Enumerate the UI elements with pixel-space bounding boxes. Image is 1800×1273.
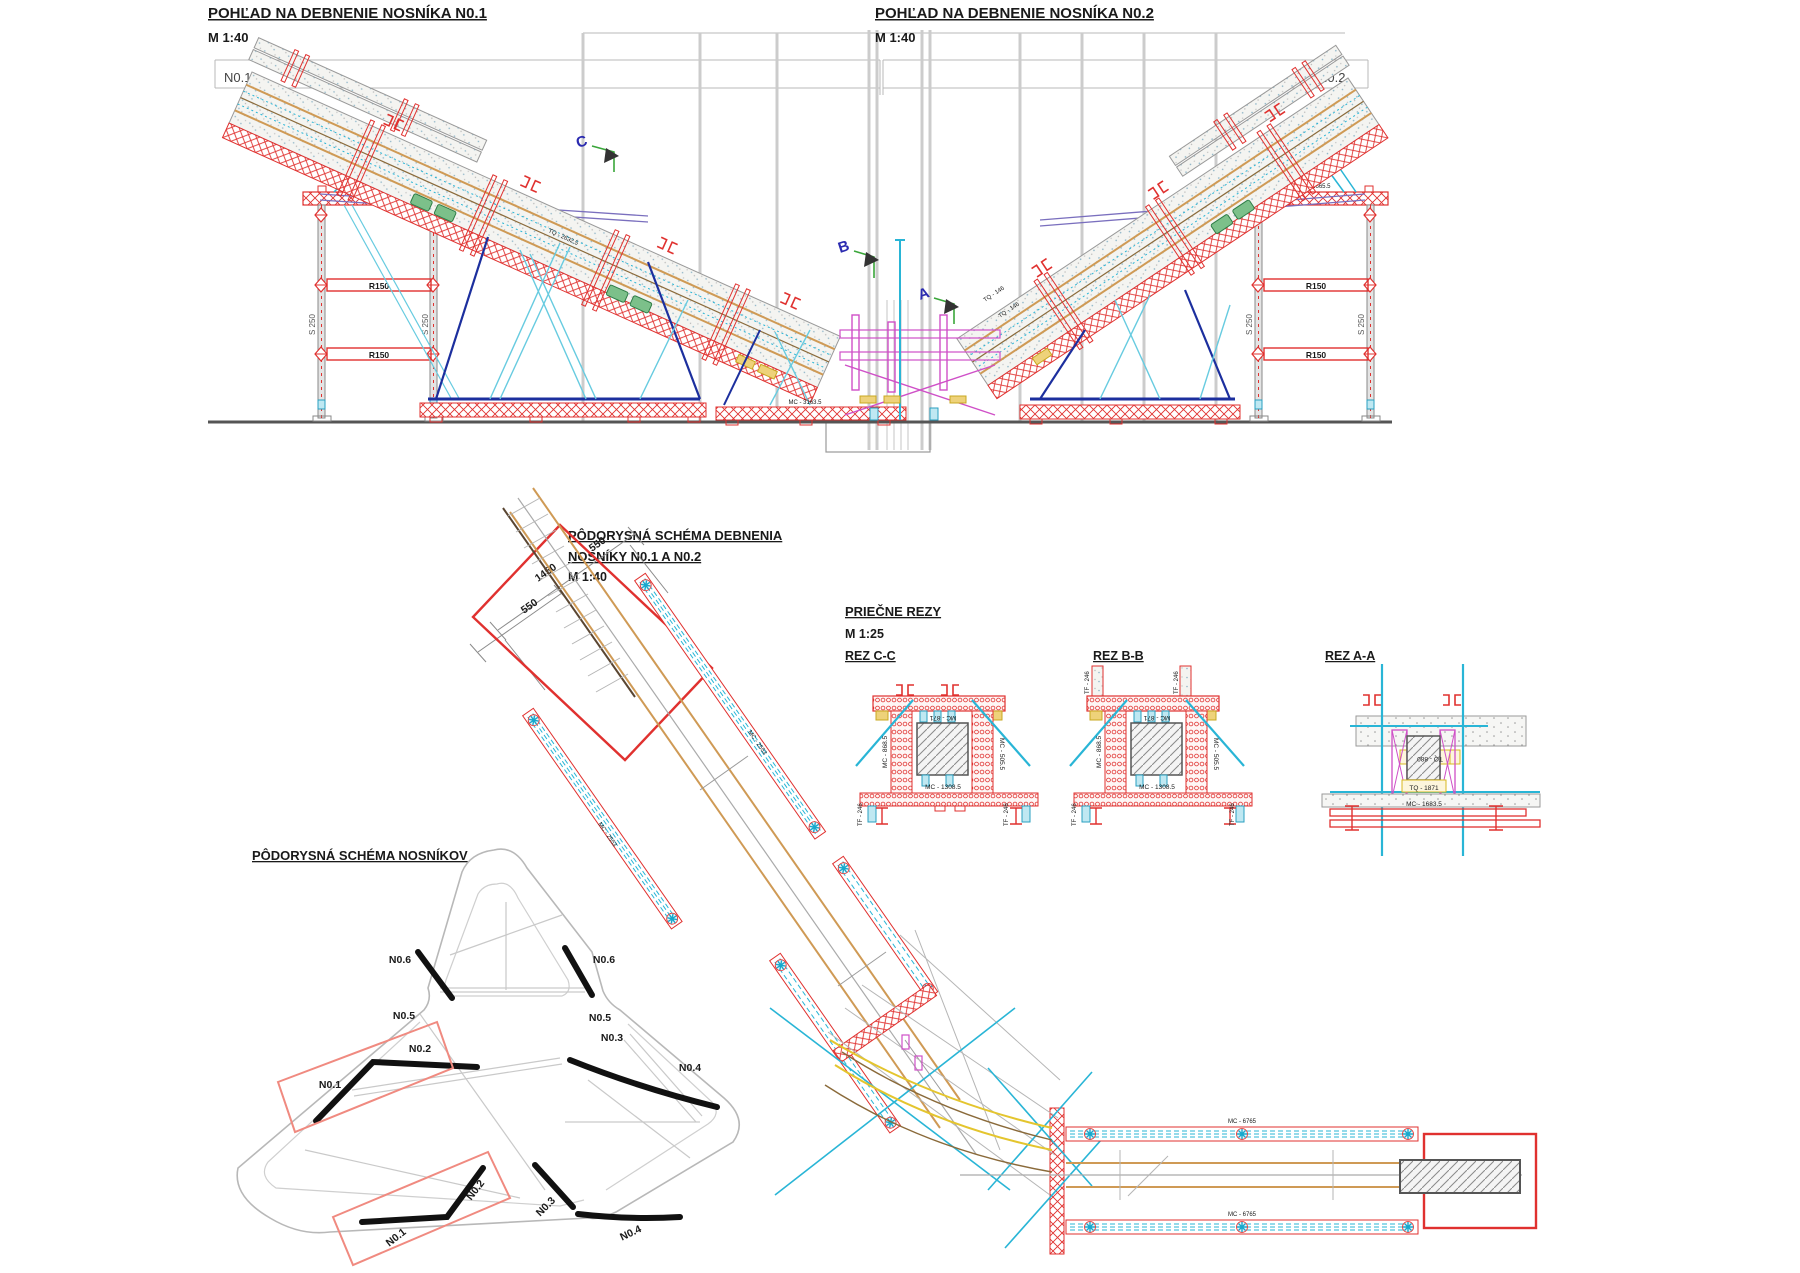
section-marker-c: C: [574, 132, 619, 172]
drawing-sheet: POHĽAD NA DEBNENIE NOSNÍKA N0.1 M 1:40 P…: [0, 0, 1800, 1273]
beam-label-n01: N0.1: [319, 1079, 341, 1091]
beam-label-n06: N0.6: [389, 954, 411, 966]
plan-junction: [770, 930, 1110, 1254]
node-part-label: TQ - 146: [983, 285, 1007, 303]
beam-label-n06: N0.6: [593, 954, 615, 966]
plan-beams-title: PÔDORYSNÁ SCHÉMA NOSNÍKOV: [252, 848, 468, 863]
rez-cc-title: REZ C-C: [845, 649, 896, 663]
mc868-label: MC - 868.5: [882, 735, 889, 768]
beam-label-n04: N0.4: [679, 1062, 701, 1074]
svg-text:B: B: [836, 237, 852, 257]
mc871-label: MC - 871: [1143, 714, 1170, 721]
bulkhead: [1050, 1108, 1064, 1254]
sections-scale: M 1:25: [845, 627, 884, 641]
chord-part-label: MC - 6765: [1228, 1212, 1257, 1218]
mc1308-label: MC - 1308.5: [925, 784, 961, 791]
s250-label: S 250: [308, 314, 317, 335]
beam-label-n04-rot: N0.4: [618, 1223, 643, 1243]
beam-label-n05: N0.5: [589, 1012, 611, 1024]
mc868-label: MC - 868.5: [1096, 735, 1103, 768]
r150-label: R150: [1306, 281, 1327, 291]
tf246-label: TF - 246: [858, 803, 864, 826]
grid-frame: [215, 33, 1368, 95]
mc1308-label: MC - 1308.5: [1139, 784, 1175, 791]
mc505-label: MC - 505.5: [998, 738, 1005, 771]
elev2-title: POHĽAD NA DEBNENIE NOSNÍKA N0.2: [875, 5, 1154, 22]
tie-rods: [320, 128, 1365, 400]
tq880-label: TQ - 880: [1417, 755, 1443, 762]
svg-text:C: C: [574, 132, 590, 152]
tf246-label: TF - 246: [1174, 671, 1180, 694]
plan-diagonal-strip: [503, 488, 976, 1154]
tf246-label: TF - 246: [1004, 803, 1010, 826]
tf246-label: TF - 246: [1085, 671, 1091, 694]
sections-title: PRIEČNE REZY: [845, 604, 941, 619]
cad-canvas: POHĽAD NA DEBNENIE NOSNÍKA N0.1 M 1:40 P…: [0, 0, 1800, 1273]
tq1871-label: TQ - 1871: [1409, 785, 1439, 792]
r150-label: R150: [369, 350, 390, 360]
rez-aa-title: REZ A-A: [1325, 649, 1375, 663]
tf246-label: TF - 246: [1072, 803, 1078, 826]
chord-part-label: MC - 6765: [1228, 1119, 1257, 1125]
s250-label: S 250: [1245, 314, 1254, 335]
r150-label: R150: [1306, 350, 1327, 360]
beam-label-n05: N0.5: [393, 1010, 415, 1022]
elev1-scale: M 1:40: [208, 30, 248, 45]
beam-label-n03: N0.3: [601, 1032, 623, 1044]
section-marker-b: B: [836, 237, 879, 278]
elev1-title: POHĽAD NA DEBNENIE NOSNÍKA N0.1: [208, 5, 487, 22]
formwork-beam-n01: [213, 34, 856, 407]
beam-label-n02: N0.2: [409, 1043, 431, 1055]
mc1683-label: MC - 1683.5: [1406, 801, 1442, 808]
elev2-scale: M 1:40: [875, 30, 915, 45]
rez-bb-title: REZ B-B: [1093, 649, 1144, 663]
base-part-label: MC - 3163.5: [788, 400, 822, 406]
mc505-label: MC - 505.5: [1212, 738, 1219, 771]
s250-label: S 250: [1357, 314, 1366, 335]
mc871-label: MC - 871: [929, 714, 956, 721]
tf246-label: TF - 246: [1230, 803, 1236, 826]
beam-label-n03-rot: N0.3: [534, 1195, 558, 1219]
